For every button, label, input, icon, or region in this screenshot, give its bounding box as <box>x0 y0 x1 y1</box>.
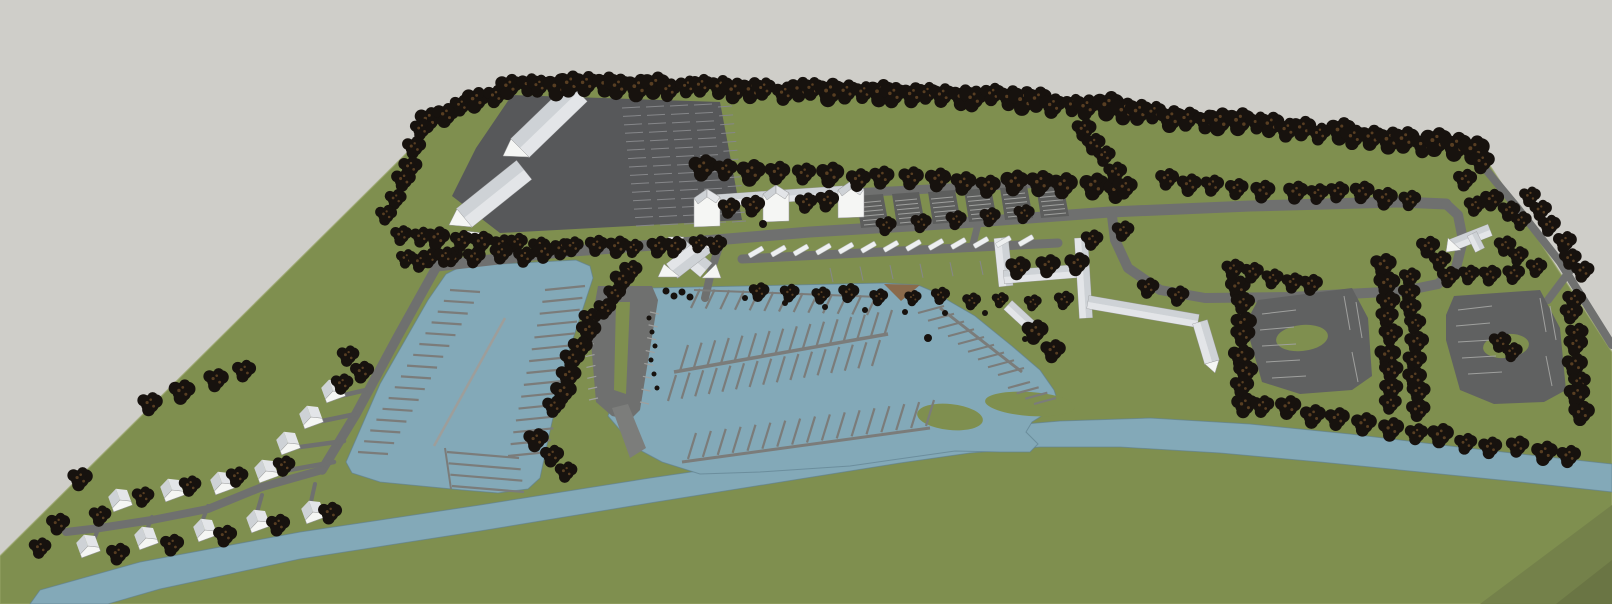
bush <box>650 330 655 335</box>
bush <box>653 344 658 349</box>
bush <box>759 220 767 228</box>
bush <box>687 294 694 301</box>
bush <box>679 289 686 296</box>
bush <box>649 358 654 363</box>
bush <box>655 386 660 391</box>
bush <box>822 304 828 310</box>
bush <box>671 293 678 300</box>
bush <box>647 316 652 321</box>
bush <box>742 295 748 301</box>
bush <box>942 310 948 316</box>
bush <box>924 334 932 342</box>
site-plan-3d-render <box>0 0 1612 604</box>
bush <box>663 288 670 295</box>
bush <box>862 307 868 313</box>
bush <box>782 300 788 306</box>
bush <box>902 309 908 315</box>
bush <box>652 372 657 377</box>
model-viewport[interactable] <box>0 0 1612 604</box>
bush <box>1022 336 1028 342</box>
bush <box>982 310 988 316</box>
